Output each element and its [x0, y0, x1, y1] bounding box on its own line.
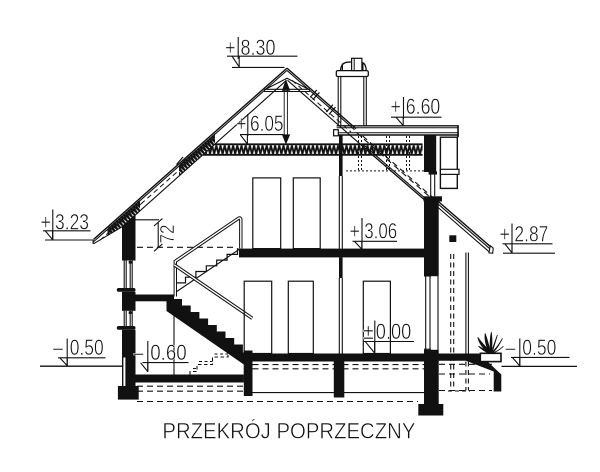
svg-text:8.30: 8.30 [241, 35, 276, 60]
svg-text:0.50: 0.50 [70, 335, 104, 360]
svg-text:0.50: 0.50 [522, 335, 556, 360]
svg-text:+: + [41, 210, 52, 235]
svg-text:+: + [225, 35, 236, 60]
svg-text:–: – [506, 335, 517, 360]
svg-text:–: – [134, 340, 145, 365]
svg-text:PRZEKRÓJ POPRZECZNY: PRZEKRÓJ POPRZECZNY [162, 419, 415, 444]
svg-text:+: + [391, 94, 402, 119]
svg-text:2.87: 2.87 [514, 222, 548, 247]
svg-text:–: – [53, 335, 64, 360]
svg-text:±: ± [363, 319, 374, 344]
svg-text:6.60: 6.60 [406, 94, 441, 119]
svg-text:0.00: 0.00 [376, 319, 412, 344]
svg-text:+: + [350, 219, 361, 244]
svg-text:72: 72 [157, 225, 179, 244]
svg-text:3.23: 3.23 [55, 210, 89, 235]
svg-text:3.06: 3.06 [364, 219, 397, 244]
svg-text:+: + [500, 222, 511, 247]
svg-text:+: + [236, 111, 247, 136]
svg-text:6.05: 6.05 [250, 111, 284, 136]
svg-text:0.60: 0.60 [150, 340, 187, 365]
